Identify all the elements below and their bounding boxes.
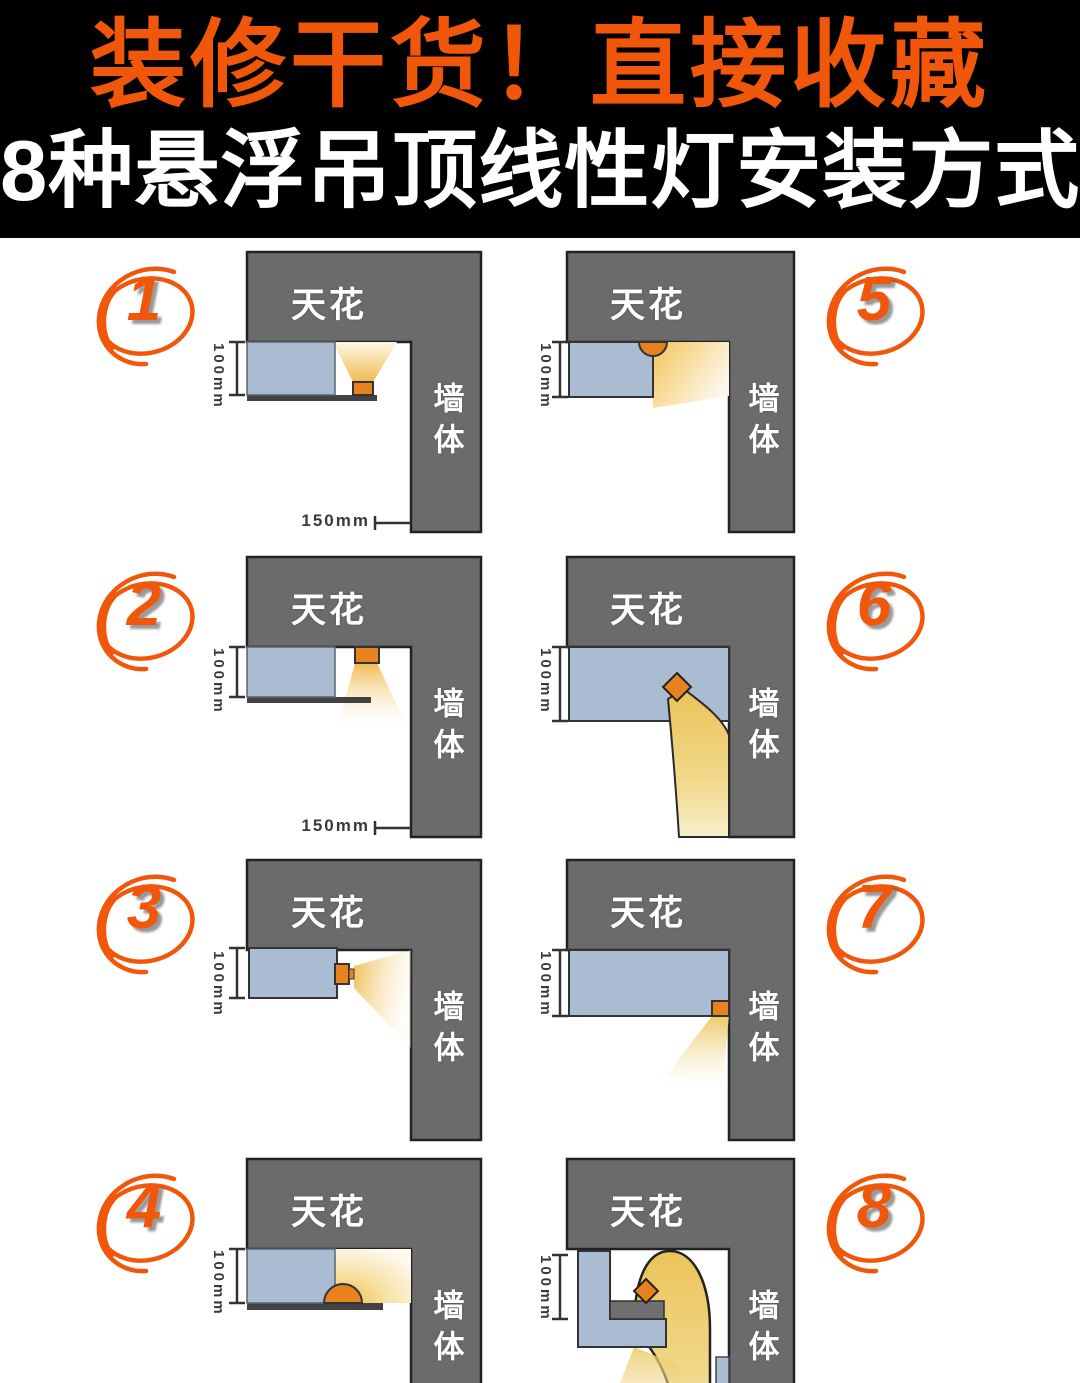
shelf-board (247, 697, 371, 703)
method-panel-4: 4 天花 墙体 100mm (60, 1151, 590, 1383)
height-dimension-marks (229, 342, 245, 395)
height-dimension-label: 100mm (537, 648, 554, 715)
suspended-ceiling-box (249, 948, 337, 998)
number-badge-8: 8 (816, 1167, 932, 1279)
ceiling-label: 天花 (291, 885, 367, 936)
wall-label: 墙体 (424, 1289, 469, 1371)
method-number: 1 (86, 264, 202, 335)
method-panel-8: 8 天花 墙体 100mm (520, 1151, 1080, 1383)
number-badge-4: 4 (86, 1167, 202, 1279)
title-line-2: 8种悬浮吊顶线性灯安装方式 (0, 122, 1080, 222)
light-glow (337, 663, 408, 729)
method-number: 3 (86, 872, 202, 943)
number-badge-6: 6 (816, 565, 932, 677)
wall-label: 墙体 (424, 687, 469, 769)
method-number: 5 (816, 264, 932, 335)
light-glow (354, 950, 411, 1048)
offset-dimension-label: 150mm (240, 511, 370, 531)
ceiling-label: 天花 (610, 277, 686, 328)
height-dimension-marks (229, 948, 245, 998)
ceiling-label: 天花 (291, 277, 367, 328)
method-panel-1: 1 天花 墙体 100mm 150mm (60, 244, 590, 544)
ceiling-label: 天花 (610, 885, 686, 936)
wall-panel-strip (716, 1357, 729, 1383)
method-panel-3: 3 天花 墙体 100mm (60, 852, 590, 1152)
height-dimension-marks (552, 1255, 568, 1319)
ceiling-label: 天花 (610, 582, 686, 633)
shelf-board (247, 1303, 383, 1310)
method-panel-6: 6 天花 墙体 100mm (520, 549, 1080, 849)
light-glow (666, 1016, 729, 1088)
recessed-lamp (712, 1001, 729, 1016)
height-dimension-marks (552, 950, 568, 1016)
method-panel-7: 7 天花 墙体 100mm (520, 852, 1080, 1152)
method-number: 2 (86, 569, 202, 640)
height-dimension-marks (229, 1249, 245, 1303)
method-panel-2: 2 天花 墙体 100mm 150mm (60, 549, 590, 849)
lamp-nozzle (349, 969, 354, 979)
wall-label: 墙体 (739, 687, 784, 769)
ceiling-label: 天花 (291, 582, 367, 633)
wall-label: 墙体 (739, 382, 784, 464)
number-badge-5: 5 (816, 260, 932, 372)
suspended-ceiling-box (569, 950, 729, 1016)
light-glow (333, 342, 397, 382)
wall-label: 墙体 (739, 990, 784, 1072)
suspended-ceiling-box (247, 647, 335, 697)
offset-dimension-marks (375, 516, 411, 530)
height-dimension-marks (229, 647, 245, 697)
wall-label: 墙体 (424, 990, 469, 1072)
number-badge-2: 2 (86, 565, 202, 677)
height-dimension-label: 100mm (537, 343, 554, 410)
height-dimension-label: 100mm (210, 648, 227, 715)
title-line-1: 装修干货！直接收藏 (0, 0, 1080, 122)
height-dimension-marks (552, 342, 568, 397)
suspended-ceiling-box (247, 1249, 335, 1303)
height-dimension-label: 100mm (210, 1250, 227, 1317)
number-badge-1: 1 (86, 260, 202, 372)
light-glow (653, 342, 729, 408)
method-number: 6 (816, 569, 932, 640)
offset-dimension-marks (375, 821, 411, 835)
method-number: 4 (86, 1171, 202, 1242)
offset-dimension-label: 150mm (240, 816, 370, 836)
height-dimension-label: 100mm (210, 951, 227, 1018)
ceiling-label: 天花 (610, 1184, 686, 1235)
height-dimension-label: 100mm (537, 951, 554, 1018)
ceiling-label: 天花 (291, 1184, 367, 1235)
number-badge-3: 3 (86, 868, 202, 980)
linear-lamp (353, 382, 373, 395)
wall-label: 墙体 (424, 382, 469, 464)
linear-lamp (335, 964, 349, 984)
linear-lamp (355, 647, 379, 663)
suspended-ceiling-box (247, 342, 335, 395)
wall-label: 墙体 (739, 1289, 784, 1371)
lamp-ledge (610, 1301, 664, 1319)
number-badge-7: 7 (816, 868, 932, 980)
poster-header: 装修干货！直接收藏 8种悬浮吊顶线性灯安装方式 (0, 0, 1080, 238)
height-dimension-label: 100mm (210, 343, 227, 410)
height-dimension-marks (552, 647, 568, 721)
method-number: 8 (816, 1171, 932, 1242)
suspended-ceiling-box (569, 342, 653, 397)
height-dimension-label: 100mm (537, 1255, 554, 1322)
method-number: 7 (816, 872, 932, 943)
method-panel-5: 5 天花 墙体 100mm (520, 244, 1080, 544)
